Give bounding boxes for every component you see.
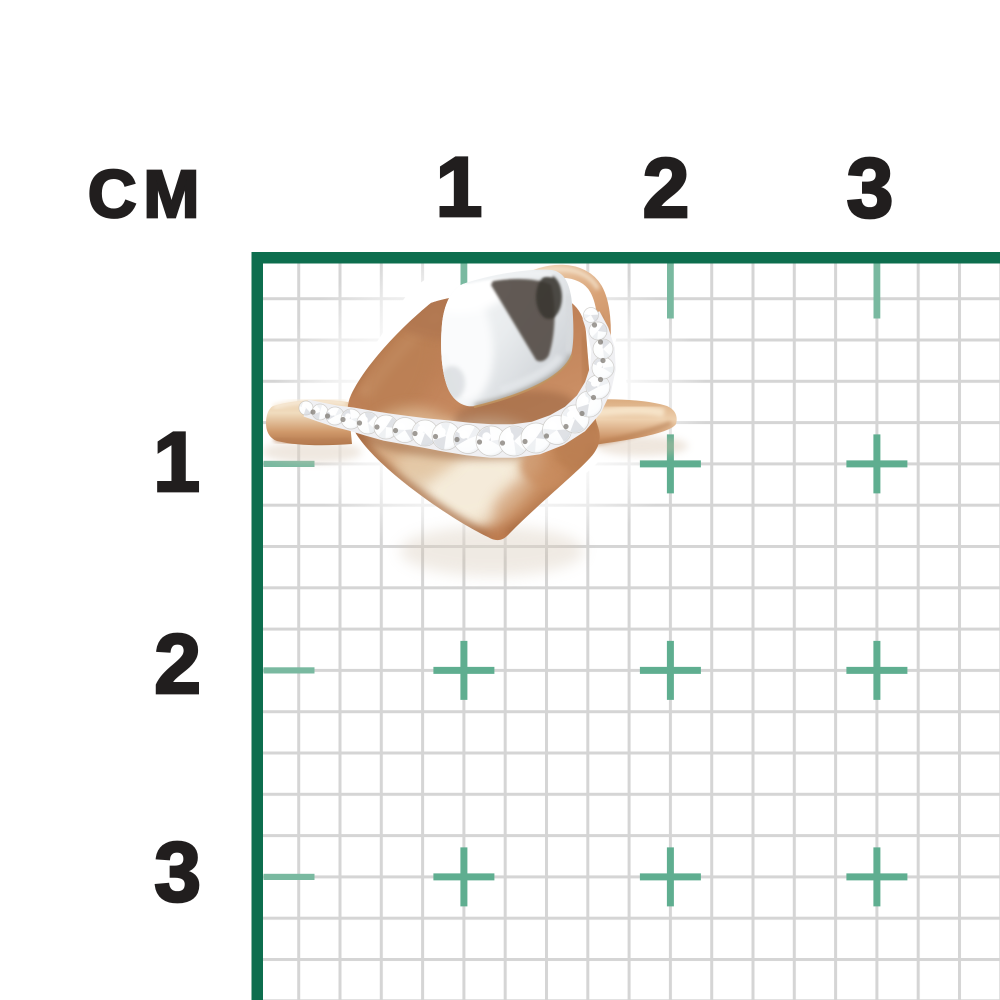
svg-text:2: 2	[154, 617, 201, 711]
svg-text:СМ: СМ	[88, 157, 207, 232]
svg-text:1: 1	[153, 415, 200, 509]
svg-text:3: 3	[847, 141, 894, 235]
svg-text:3: 3	[154, 825, 201, 919]
svg-text:1: 1	[436, 140, 483, 234]
svg-text:2: 2	[643, 141, 690, 235]
